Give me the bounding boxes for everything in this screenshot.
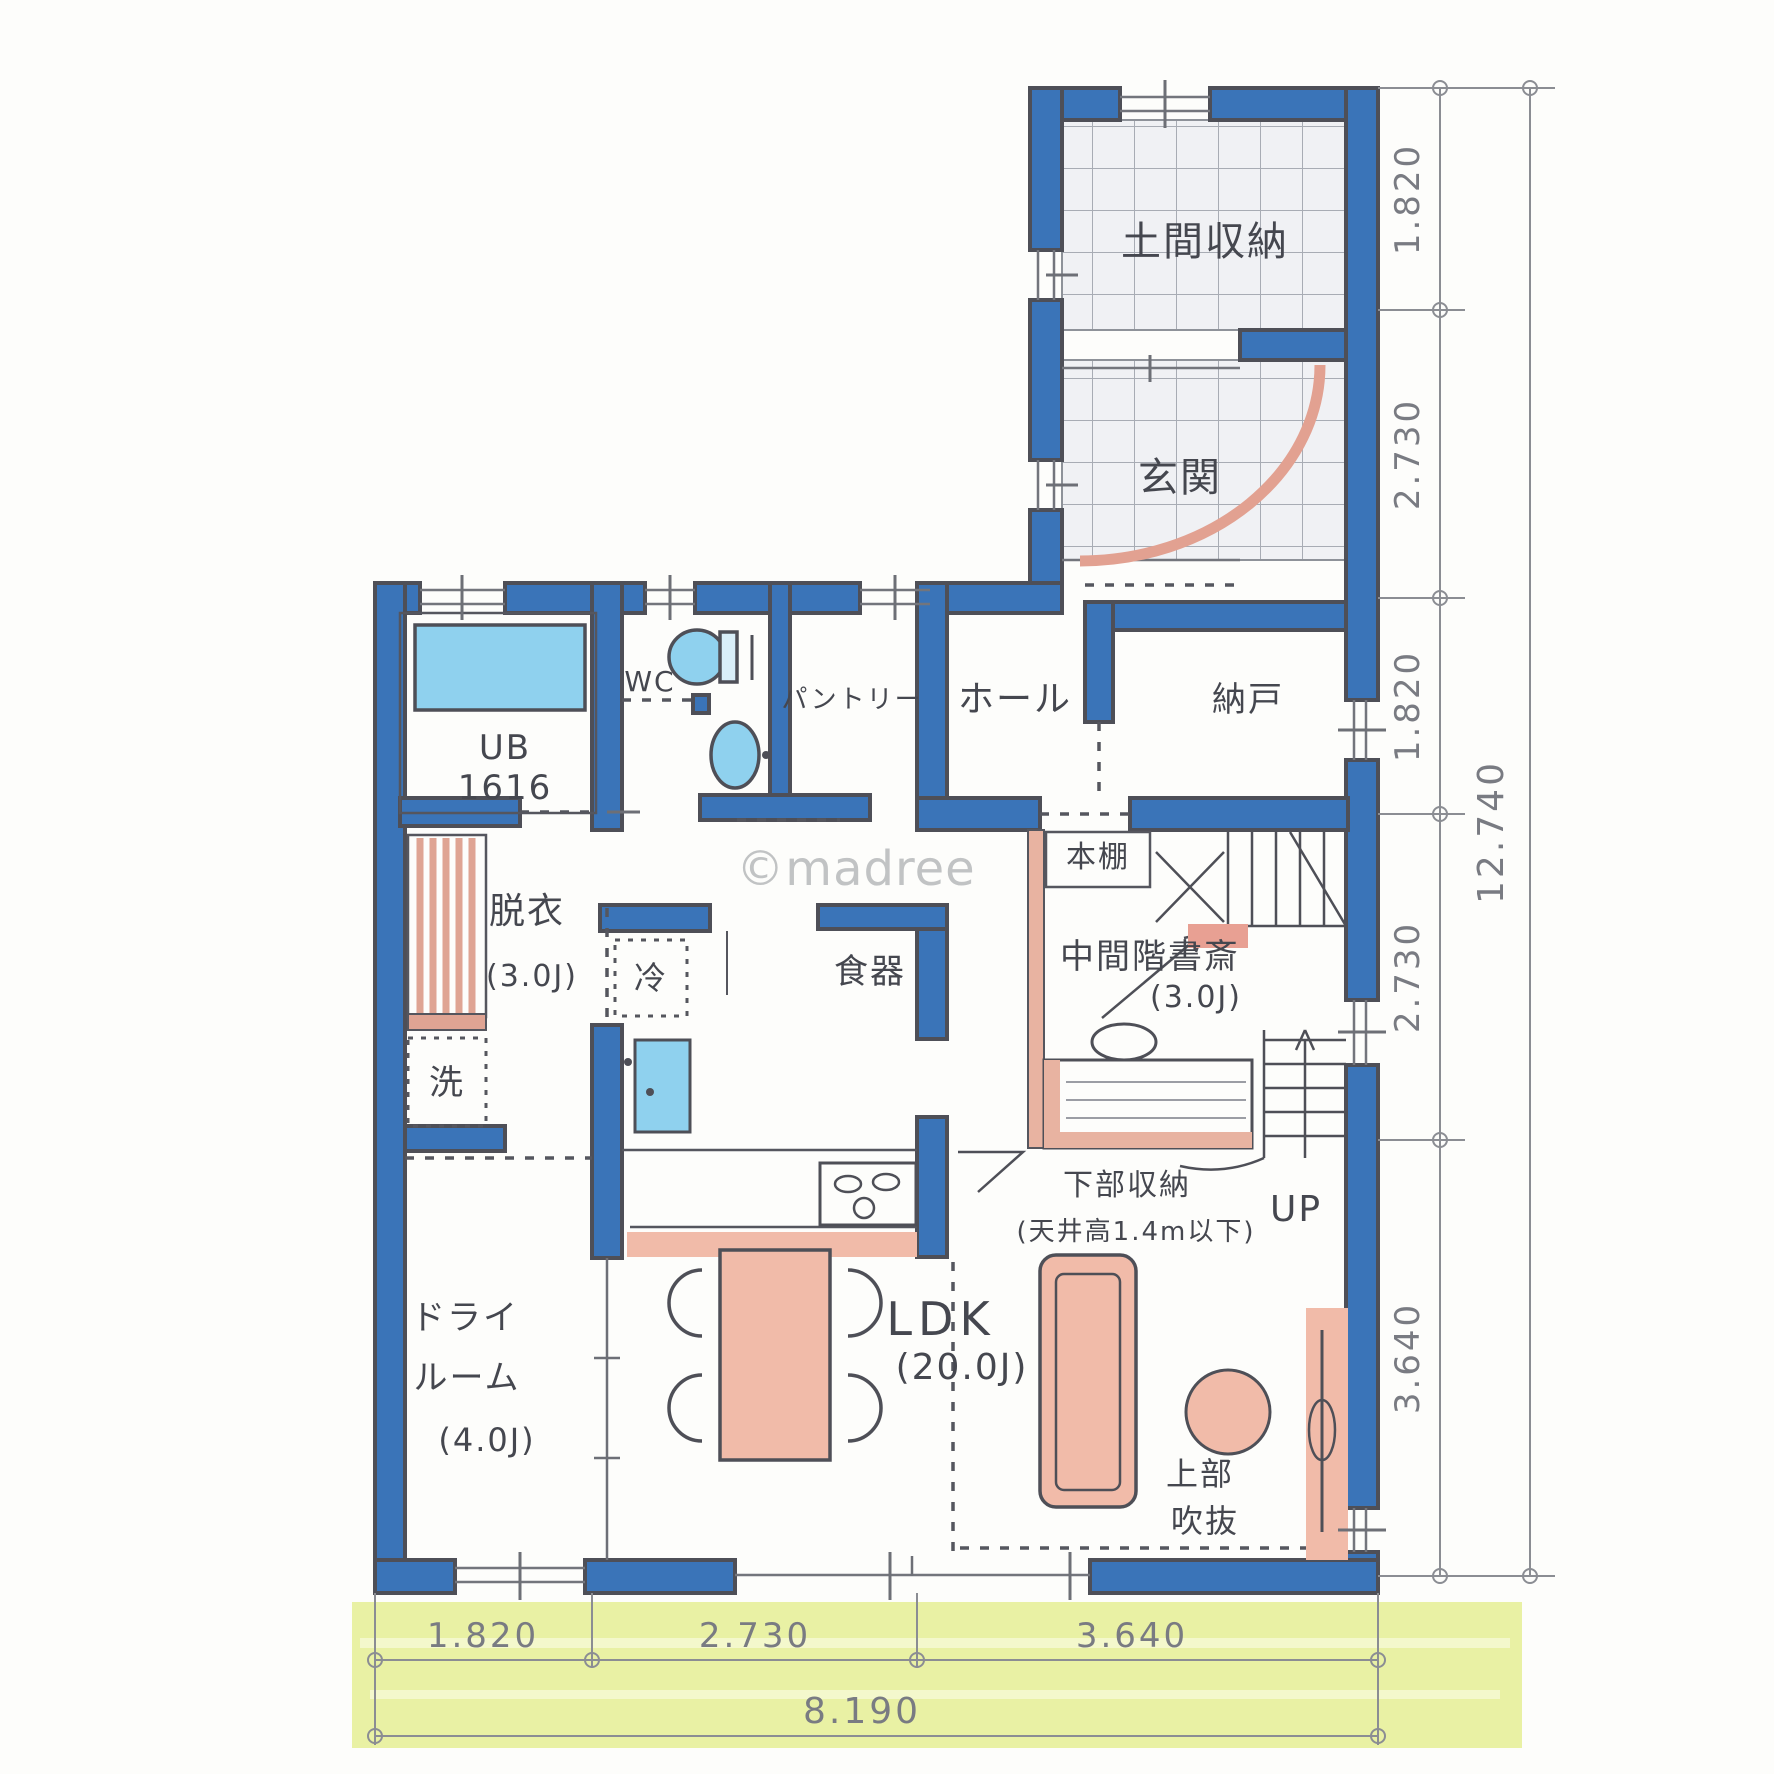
label-up: UP (1270, 1192, 1322, 1228)
room-label-datsui: 脱衣 (489, 894, 565, 930)
room-label-dry-size: (4.0J) (438, 1424, 535, 1456)
label-fridge: 冷 (634, 962, 668, 994)
lower-storage-leader (958, 1152, 1023, 1192)
room-label-dry-1: ドライ (411, 1301, 519, 1335)
sofa (1040, 1255, 1136, 1507)
toilet-icon (669, 630, 752, 684)
label-lower-storage: 下部収納 (1063, 1171, 1191, 1201)
room-label-ldk-size: (20.0J) (896, 1350, 1029, 1386)
label-dishes: 食器 (834, 955, 906, 989)
kitchen-door-panel (624, 1040, 690, 1132)
stove-icon (820, 1163, 916, 1225)
dim-right-5: 3.640 (1391, 1302, 1425, 1414)
dim-bottom-total: 8.190 (803, 1694, 921, 1730)
dim-bottom-3: 3.640 (1076, 1619, 1188, 1653)
label-void-upper-2: 吹抜 (1171, 1505, 1239, 1537)
room-label-ldk: LDK (886, 1296, 995, 1342)
room-label-nando: 納戸 (1212, 683, 1284, 717)
label-lower-storage-note: (天井高1.4m以下) (1017, 1219, 1256, 1245)
room-label-ub-size: 1616 (458, 771, 553, 805)
room-label-study-size: (3.0J) (1150, 983, 1242, 1013)
floor-plan-canvas: 土間収納 玄関 UB 1616 WC パントリー ホール 納戸 脱衣 (3.0J… (0, 0, 1774, 1774)
dim-right-3: 1.820 (1391, 650, 1425, 762)
dim-right-1: 1.820 (1391, 143, 1425, 255)
label-void-upper-1: 上部 (1166, 1458, 1234, 1490)
dim-right-total: 12.740 (1474, 760, 1510, 904)
room-label-ub: UB (479, 731, 531, 765)
dim-bottom-2: 2.730 (699, 1619, 811, 1653)
room-label-wc: WC (624, 668, 675, 696)
room-label-study: 中間階書斎 (1060, 940, 1240, 974)
room-label-pantry: パントリー (781, 687, 922, 713)
dining-table (669, 1250, 881, 1460)
label-bookshelf: 本棚 (1066, 843, 1130, 873)
round-table (1186, 1370, 1270, 1454)
room-label-datsui-size: (3.0J) (486, 962, 578, 992)
tv-board (1306, 1308, 1348, 1560)
room-label-dry-2: ルーム (414, 1361, 521, 1395)
room-label-hall: ホール (958, 682, 1072, 718)
dim-bottom-1: 1.820 (427, 1619, 539, 1653)
dim-right-2: 2.730 (1391, 398, 1425, 510)
linen-shelf (408, 835, 486, 1030)
washbasin-icon (711, 722, 770, 788)
dim-right-4: 2.730 (1391, 921, 1425, 1033)
label-laundry: 洗 (429, 1066, 465, 1100)
study-chair (1092, 1024, 1156, 1060)
room-label-doma-storage: 土間収納 (1121, 222, 1289, 262)
watermark: ©madree (736, 845, 975, 893)
room-label-genkan: 玄関 (1138, 458, 1222, 498)
